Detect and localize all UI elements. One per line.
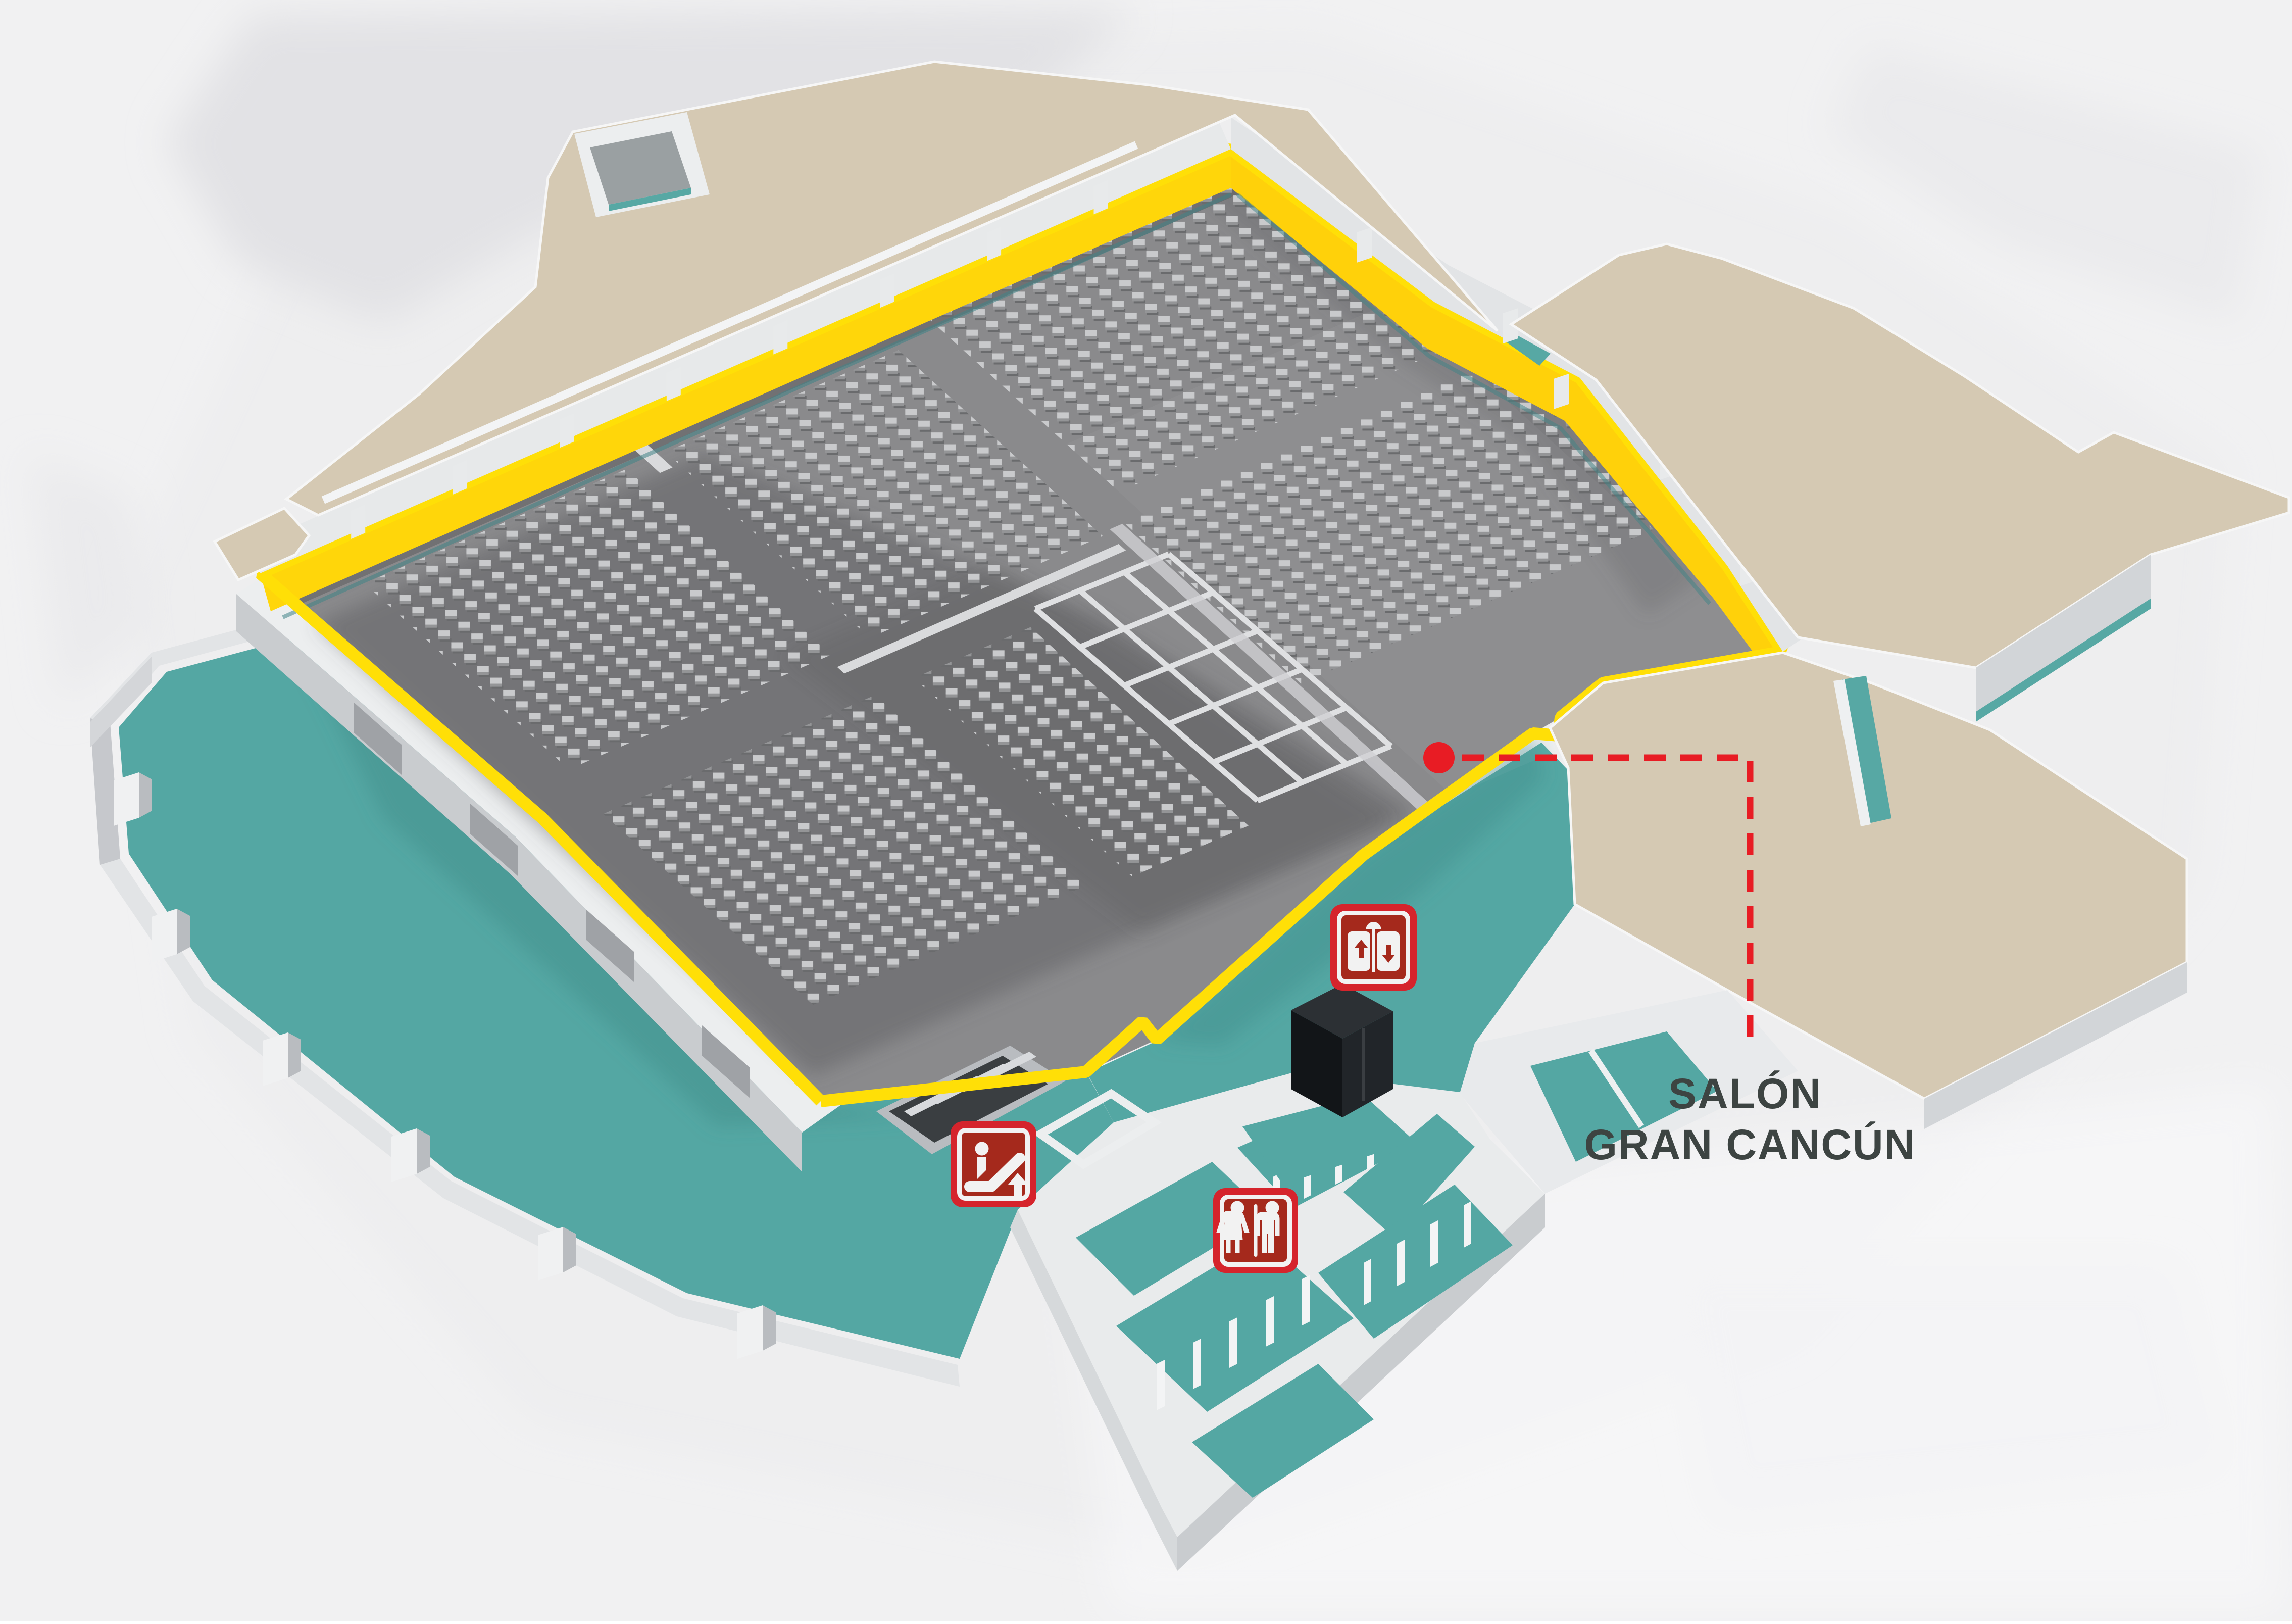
svg-text:GRAN CANCÚN: GRAN CANCÚN bbox=[1584, 1121, 1916, 1168]
svg-text:SALÓN: SALÓN bbox=[1668, 1070, 1822, 1117]
